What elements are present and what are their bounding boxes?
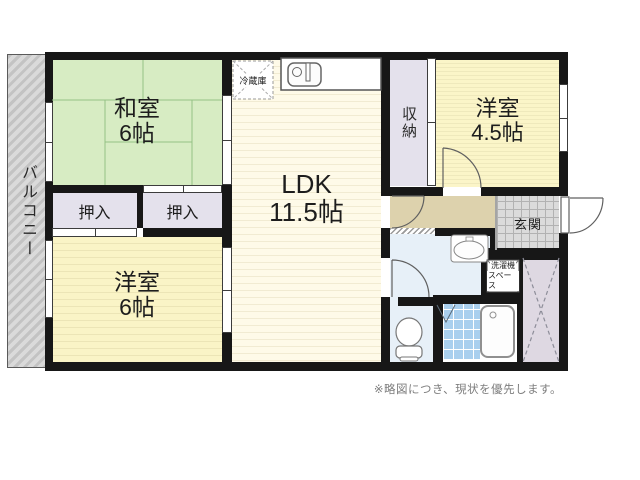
balcony-label: バルコニー (15, 164, 39, 259)
front-door-leaf (561, 197, 569, 233)
wall-segment (381, 297, 390, 371)
wall-segment (381, 228, 390, 258)
wall-segment (398, 297, 433, 306)
western-room-45-label: 洋室 4.5帖 (436, 97, 559, 145)
wall-segment (481, 187, 568, 196)
balcony-area: バルコニー (7, 54, 47, 368)
bathroom-tile-floor (443, 304, 480, 360)
sliding-door (52, 228, 137, 237)
washroom-entry-threshold (390, 228, 435, 234)
floor-plan: バルコニー (0, 0, 640, 480)
window (559, 84, 568, 152)
storage-label: 収納 (390, 60, 427, 186)
wall-segment (381, 187, 443, 196)
disclaimer-note: ※略図につき、現状を優先します。 (300, 381, 562, 397)
wall-segment (222, 185, 232, 247)
wall-segment (222, 60, 232, 95)
bathtub-area-floor (480, 304, 516, 360)
japanese-room-label: 和室 6帖 (52, 96, 222, 146)
wall-segment (47, 185, 145, 193)
wall-segment (222, 333, 232, 371)
front-door-arc (570, 198, 603, 233)
wall-segment (435, 228, 497, 236)
wall-segment (45, 52, 53, 102)
sliding-door (222, 95, 232, 185)
wall-segment (47, 362, 568, 371)
wall-segment (47, 52, 568, 60)
refrigerator-label: 冷蔵庫 (233, 61, 273, 99)
closet-left-label: 押入 (52, 193, 137, 228)
wall-segment (381, 52, 390, 196)
hallway-floor (390, 196, 496, 228)
closet-right-label: 押入 (143, 193, 222, 228)
entrance-label: 玄関 (497, 196, 559, 250)
wall-segment (559, 52, 568, 84)
shaft-area-floor (523, 258, 559, 362)
washroom-floor (390, 234, 490, 297)
ldk-label: LDK 11.5帖 (232, 170, 381, 226)
toilet-doorway (390, 297, 398, 306)
wall-segment (559, 233, 568, 371)
wall-segment (559, 152, 568, 196)
toilet-room-floor (390, 306, 433, 362)
western-room-6-label: 洋室 6帖 (52, 270, 222, 320)
wall-segment (433, 295, 443, 362)
wall-segment (45, 318, 53, 371)
washer-space-label: 洗濯機 スペース (487, 260, 519, 292)
wall-segment (143, 228, 232, 237)
sliding-door (427, 58, 436, 186)
sliding-door (143, 185, 222, 193)
sliding-door (222, 247, 232, 333)
